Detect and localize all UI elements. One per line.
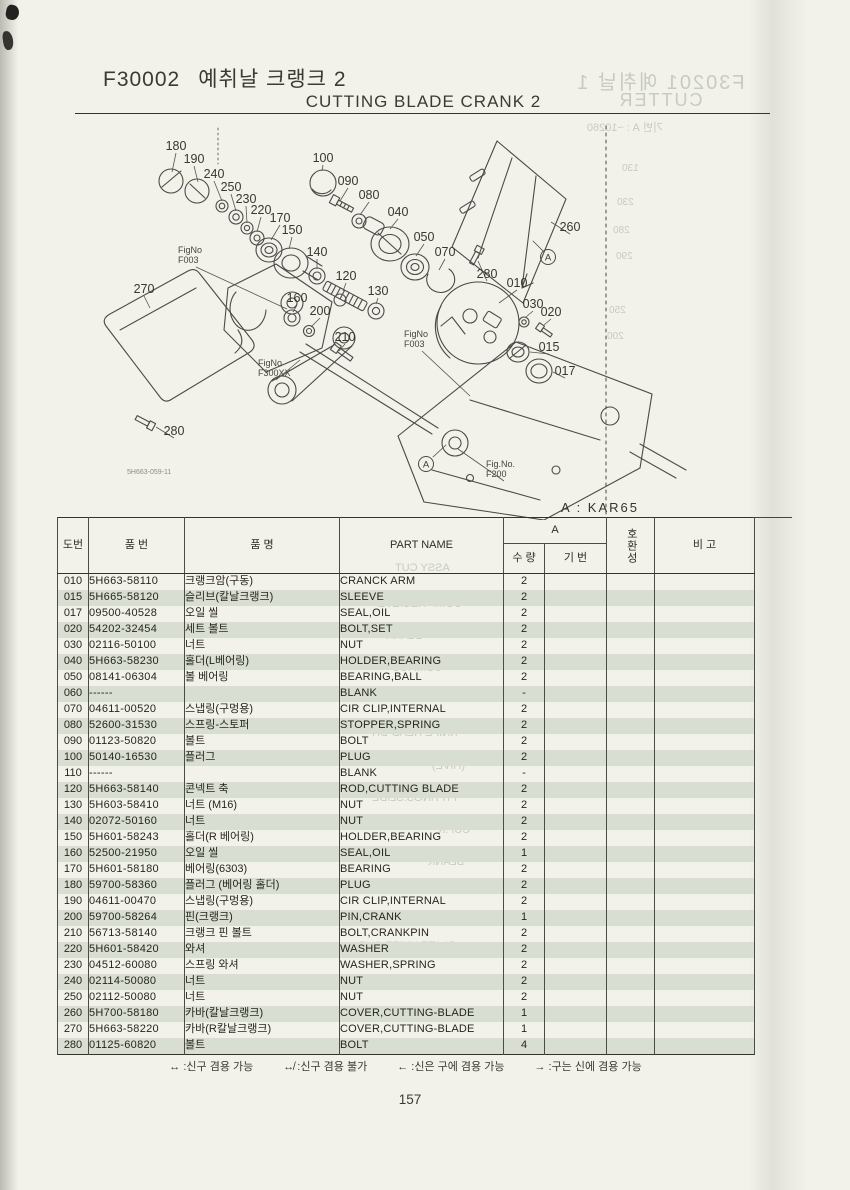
cell-serial xyxy=(545,638,607,654)
table-row: 230 04512-60080 스프링 와셔 WASHER,SPRING 2 xyxy=(58,958,755,974)
cell-index: 150 xyxy=(58,830,89,846)
cell-index: 110 xyxy=(58,766,89,782)
cell-name-korean: 세트 볼트 xyxy=(185,622,340,638)
diagram-callout: 010 xyxy=(507,276,528,290)
cell-interchange xyxy=(607,926,655,942)
table-row: 160 52500-21950 오일 씰 SEAL,OIL 1 xyxy=(58,846,755,862)
cell-serial xyxy=(545,926,607,942)
cell-index: 015 xyxy=(58,590,89,606)
cell-part-number: 5H663-58110 xyxy=(89,574,185,591)
cell-quantity: 2 xyxy=(504,606,545,622)
diagram-callout: 100 xyxy=(313,151,334,165)
col-header-part-name: PART NAME xyxy=(340,518,504,574)
cell-interchange xyxy=(607,942,655,958)
diagram-callout: 210 xyxy=(335,330,356,344)
cell-remarks xyxy=(655,670,755,686)
cell-serial xyxy=(545,1022,607,1038)
cell-part-number: 04611-00520 xyxy=(89,702,185,718)
cell-serial xyxy=(545,910,607,926)
cell-index: 140 xyxy=(58,814,89,830)
cell-name-korean: 볼 베어링 xyxy=(185,670,340,686)
cell-serial xyxy=(545,942,607,958)
cell-remarks xyxy=(655,638,755,654)
cell-part-name: NUT xyxy=(340,638,504,654)
cell-quantity: 2 xyxy=(504,974,545,990)
cell-index: 250 xyxy=(58,990,89,1006)
diagram-callout: 140 xyxy=(307,245,328,259)
parts-table-wrap: 도번 품 번 품 명 PART NAME A 호환성 비 고 수 량 기 번 0… xyxy=(57,517,755,1055)
cell-part-number: 5H663-58220 xyxy=(89,1022,185,1038)
cell-remarks xyxy=(655,814,755,830)
cell-index: 010 xyxy=(58,574,89,591)
diagram-callout: 160 xyxy=(287,291,308,305)
cell-quantity: 2 xyxy=(504,654,545,670)
cell-part-number: 5H601-58243 xyxy=(89,830,185,846)
cell-remarks xyxy=(655,974,755,990)
cell-serial xyxy=(545,574,607,591)
cell-part-name: BEARING xyxy=(340,862,504,878)
cell-index: 020 xyxy=(58,622,89,638)
cell-quantity: 1 xyxy=(504,1022,545,1038)
cell-remarks xyxy=(655,1038,755,1055)
table-row: 220 5H601-58420 와셔 WASHER 2 xyxy=(58,942,755,958)
cell-interchange xyxy=(607,910,655,926)
cell-name-korean: 카바(칼날크랭크) xyxy=(185,1006,340,1022)
cell-part-name: SLEEVE xyxy=(340,590,504,606)
cell-part-name: CIR CLIP,INTERNAL xyxy=(340,702,504,718)
cell-quantity: - xyxy=(504,766,545,782)
cell-name-korean: 스프링-스토퍼 xyxy=(185,718,340,734)
col-header-name-kr: 품 명 xyxy=(185,518,340,574)
cell-remarks xyxy=(655,782,755,798)
cell-interchange xyxy=(607,734,655,750)
cell-part-name: CRANCK ARM xyxy=(340,574,504,591)
cell-part-number: 02072-50160 xyxy=(89,814,185,830)
cell-part-number: ------ xyxy=(89,766,185,782)
cell-interchange xyxy=(607,798,655,814)
cell-quantity: 2 xyxy=(504,814,545,830)
table-row: 050 08141-06304 볼 베어링 BEARING,BALL 2 xyxy=(58,670,755,686)
cell-part-name: BLANK xyxy=(340,766,504,782)
fig-reference-label: FigNoF003 xyxy=(404,329,428,349)
cell-remarks xyxy=(655,798,755,814)
legend-item: → :구는 신에 겸용 가능 xyxy=(534,1058,641,1074)
cell-interchange xyxy=(607,638,655,654)
cell-remarks xyxy=(655,894,755,910)
cell-part-number: 5H603-58410 xyxy=(89,798,185,814)
col-header-interchange: 호환성 xyxy=(607,518,655,574)
callout-leader xyxy=(271,225,280,240)
diagram-callout: 200 xyxy=(310,304,331,318)
callout-leader xyxy=(144,296,150,308)
cell-serial xyxy=(545,750,607,766)
cell-interchange xyxy=(607,1038,655,1055)
a-marker-label: A xyxy=(423,460,430,471)
cell-index: 030 xyxy=(58,638,89,654)
diagram-callout: 015 xyxy=(539,340,560,354)
cell-quantity: 2 xyxy=(504,782,545,798)
cell-part-number: 5H700-58180 xyxy=(89,1006,185,1022)
fig-reference-label: Fig.No.F200 xyxy=(486,459,515,479)
cell-part-number: 09500-40528 xyxy=(89,606,185,622)
cell-name-korean: 스냅링(구멍용) xyxy=(185,702,340,718)
table-row: 200 59700-58264 핀(크랭크) PIN,CRANK 1 xyxy=(58,910,755,926)
cell-quantity: 2 xyxy=(504,734,545,750)
fig-label-leader xyxy=(196,267,287,309)
cell-part-number: 02116-50100 xyxy=(89,638,185,654)
cell-part-name: NUT xyxy=(340,974,504,990)
cell-index: 080 xyxy=(58,718,89,734)
cell-quantity: 2 xyxy=(504,750,545,766)
cell-part-number: 02114-50080 xyxy=(89,974,185,990)
cell-remarks xyxy=(655,990,755,1006)
cell-serial xyxy=(545,830,607,846)
fig-reference-label: FigNoF003 xyxy=(178,245,202,265)
diagram-callout: 120 xyxy=(336,269,357,283)
cell-remarks xyxy=(655,718,755,734)
cell-name-korean: 볼트 xyxy=(185,1038,340,1055)
cell-remarks xyxy=(655,734,755,750)
cell-quantity: 2 xyxy=(504,670,545,686)
cell-interchange xyxy=(607,846,655,862)
cell-part-number: 08141-06304 xyxy=(89,670,185,686)
cell-interchange xyxy=(607,718,655,734)
cell-serial xyxy=(545,846,607,862)
cell-interchange xyxy=(607,990,655,1006)
table-row: 190 04611-00470 스냅링(구멍용) CIR CLIP,INTERN… xyxy=(58,894,755,910)
cell-part-number: 50140-16530 xyxy=(89,750,185,766)
diagram-callout: 080 xyxy=(359,188,380,202)
cell-name-korean: 스냅링(구멍용) xyxy=(185,894,340,910)
cell-remarks xyxy=(655,862,755,878)
diagram-callout: 090 xyxy=(338,174,359,188)
cell-remarks xyxy=(655,686,755,702)
table-row: 180 59700-58360 플러그 (베어링 홀더) PLUG 2 xyxy=(58,878,755,894)
cell-part-name: BOLT xyxy=(340,734,504,750)
diagram-callout: 280 xyxy=(477,267,498,281)
cell-name-korean: 크랭크암(구동) xyxy=(185,574,340,591)
cell-part-number: 04611-00470 xyxy=(89,894,185,910)
diagram-callout: 260 xyxy=(560,220,581,234)
cell-quantity: 2 xyxy=(504,798,545,814)
exploded-diagram: 1801902402502302201701501401000900800400… xyxy=(0,0,850,520)
col-header-serial: 기 번 xyxy=(545,544,607,574)
cell-index: 060 xyxy=(58,686,89,702)
interchange-legend: ↔ :신구 겸용 가능↮ :신구 겸용 불가← :신은 구에 겸용 가능→ :구… xyxy=(57,1058,754,1074)
callout-leader xyxy=(257,217,261,232)
cell-index: 070 xyxy=(58,702,89,718)
cell-remarks xyxy=(655,958,755,974)
table-row: 100 50140-16530 플러그 PLUG 2 xyxy=(58,750,755,766)
cell-quantity: 2 xyxy=(504,942,545,958)
cell-serial xyxy=(545,990,607,1006)
cell-remarks xyxy=(655,574,755,591)
cell-index: 130 xyxy=(58,798,89,814)
table-row: 110 ------ BLANK - xyxy=(58,766,755,782)
cell-quantity: 2 xyxy=(504,590,545,606)
cell-name-korean: 홀더(R 베어링) xyxy=(185,830,340,846)
cell-part-number: 5H665-58120 xyxy=(89,590,185,606)
table-row: 010 5H663-58110 크랭크암(구동) CRANCK ARM 2 xyxy=(58,574,755,591)
table-row: 260 5H700-58180 카바(칼날크랭크) COVER,CUTTING-… xyxy=(58,1006,755,1022)
cell-name-korean: 베어링(6303) xyxy=(185,862,340,878)
cell-name-korean: 플러그 (베어링 홀더) xyxy=(185,878,340,894)
cell-remarks xyxy=(655,590,755,606)
cell-name-korean: 너트 (M16) xyxy=(185,798,340,814)
table-row: 070 04611-00520 스냅링(구멍용) CIR CLIP,INTERN… xyxy=(58,702,755,718)
cell-remarks xyxy=(655,942,755,958)
cell-quantity: 1 xyxy=(504,910,545,926)
table-row: 140 02072-50160 너트 NUT 2 xyxy=(58,814,755,830)
cell-serial xyxy=(545,782,607,798)
cell-remarks xyxy=(655,830,755,846)
cell-quantity: 2 xyxy=(504,638,545,654)
cell-name-korean: 볼트 xyxy=(185,734,340,750)
table-row: 150 5H601-58243 홀더(R 베어링) HOLDER,BEARING… xyxy=(58,830,755,846)
applicability-note: A : KAR65 xyxy=(500,500,700,515)
cell-part-name: BOLT,SET xyxy=(340,622,504,638)
cell-part-number: 5H601-58420 xyxy=(89,942,185,958)
cell-name-korean: 너트 xyxy=(185,638,340,654)
cell-quantity: 4 xyxy=(504,1038,545,1055)
cell-interchange xyxy=(607,1006,655,1022)
cell-name-korean xyxy=(185,766,340,782)
table-row: 020 54202-32454 세트 볼트 BOLT,SET 2 xyxy=(58,622,755,638)
cell-index: 210 xyxy=(58,926,89,942)
col-header-remarks: 비 고 xyxy=(655,518,755,574)
cell-index: 040 xyxy=(58,654,89,670)
cell-serial xyxy=(545,702,607,718)
cell-part-name: WASHER xyxy=(340,942,504,958)
diagram-callout: 180 xyxy=(166,139,187,153)
cell-name-korean: 너트 xyxy=(185,974,340,990)
cell-part-number: 5H663-58140 xyxy=(89,782,185,798)
table-row: 015 5H665-58120 슬리브(칼날크랭크) SLEEVE 2 xyxy=(58,590,755,606)
cell-index: 050 xyxy=(58,670,89,686)
cell-index: 100 xyxy=(58,750,89,766)
cell-remarks xyxy=(655,846,755,862)
cell-quantity: 2 xyxy=(504,622,545,638)
cell-serial xyxy=(545,718,607,734)
cell-name-korean xyxy=(185,686,340,702)
cell-name-korean: 홀더(L베어링) xyxy=(185,654,340,670)
cell-part-name: HOLDER,BEARING xyxy=(340,654,504,670)
diagram-callout: 220 xyxy=(251,203,272,217)
cell-part-number: 52600-31530 xyxy=(89,718,185,734)
col-header-qty: 수 량 xyxy=(504,544,545,574)
cell-part-number: ------ xyxy=(89,686,185,702)
table-row: 130 5H603-58410 너트 (M16) NUT 2 xyxy=(58,798,755,814)
cell-interchange xyxy=(607,878,655,894)
cell-part-name: SEAL,OIL xyxy=(340,606,504,622)
cell-part-name: BLANK xyxy=(340,686,504,702)
col-header-index: 도번 xyxy=(58,518,89,574)
cell-part-name: NUT xyxy=(340,798,504,814)
cell-part-name: STOPPER,SPRING xyxy=(340,718,504,734)
fig-reference-label: FigNoF300XX xyxy=(258,358,291,378)
cell-remarks xyxy=(655,654,755,670)
cell-quantity: 2 xyxy=(504,958,545,974)
cell-interchange xyxy=(607,670,655,686)
cell-interchange xyxy=(607,830,655,846)
cell-interchange xyxy=(607,590,655,606)
diagram-callout: 070 xyxy=(435,245,456,259)
cell-serial xyxy=(545,766,607,782)
cell-name-korean: 너트 xyxy=(185,990,340,1006)
cell-interchange xyxy=(607,974,655,990)
cell-serial xyxy=(545,686,607,702)
cell-remarks xyxy=(655,910,755,926)
cell-part-name: SEAL,OIL xyxy=(340,846,504,862)
diagram-callout: 270 xyxy=(134,282,155,296)
callout-leader xyxy=(360,202,369,215)
diagram-callout: 280 xyxy=(164,424,185,438)
cell-remarks xyxy=(655,1006,755,1022)
cell-quantity: 2 xyxy=(504,702,545,718)
cell-part-name: NUT xyxy=(340,990,504,1006)
cell-serial xyxy=(545,734,607,750)
cell-interchange xyxy=(607,894,655,910)
cell-interchange xyxy=(607,750,655,766)
cell-name-korean: 크랭크 핀 볼트 xyxy=(185,926,340,942)
cell-quantity: 2 xyxy=(504,830,545,846)
table-row: 080 52600-31530 스프링-스토퍼 STOPPER,SPRING 2 xyxy=(58,718,755,734)
cell-name-korean: 와셔 xyxy=(185,942,340,958)
diagram-callout: 040 xyxy=(388,205,409,219)
cell-serial xyxy=(545,894,607,910)
cell-interchange xyxy=(607,654,655,670)
cell-serial xyxy=(545,670,607,686)
cell-interchange xyxy=(607,686,655,702)
cell-part-number: 04512-60080 xyxy=(89,958,185,974)
cell-quantity: 2 xyxy=(504,862,545,878)
cell-part-number: 01125-60820 xyxy=(89,1038,185,1055)
diagram-callout: 050 xyxy=(414,230,435,244)
cell-serial xyxy=(545,798,607,814)
cell-interchange xyxy=(607,622,655,638)
table-row: 030 02116-50100 너트 NUT 2 xyxy=(58,638,755,654)
cell-index: 280 xyxy=(58,1038,89,1055)
cell-serial xyxy=(545,622,607,638)
cell-part-name: PLUG xyxy=(340,750,504,766)
cell-part-number: 59700-58360 xyxy=(89,878,185,894)
table-rule-extension xyxy=(753,517,792,518)
table-row: 240 02114-50080 너트 NUT 2 xyxy=(58,974,755,990)
cell-interchange xyxy=(607,814,655,830)
cell-part-name: CIR CLIP,INTERNAL xyxy=(340,894,504,910)
cell-index: 120 xyxy=(58,782,89,798)
callout-leader xyxy=(289,237,292,249)
fig-label-leader xyxy=(422,351,470,396)
cell-remarks xyxy=(655,766,755,782)
cell-interchange xyxy=(607,766,655,782)
table-row: 270 5H663-58220 카바(R칼날크랭크) COVER,CUTTING… xyxy=(58,1022,755,1038)
cell-part-name: COVER,CUTTING-BLADE xyxy=(340,1006,504,1022)
cell-interchange xyxy=(607,958,655,974)
diagram-callout: 017 xyxy=(555,364,576,378)
cell-index: 230 xyxy=(58,958,89,974)
callout-leader xyxy=(439,259,445,270)
cell-remarks xyxy=(655,750,755,766)
diagram-callout: 150 xyxy=(282,223,303,237)
cell-serial xyxy=(545,1006,607,1022)
cell-index: 017 xyxy=(58,606,89,622)
cell-part-number: 59700-58264 xyxy=(89,910,185,926)
table-row: 210 56713-58140 크랭크 핀 볼트 BOLT,CRANKPIN 2 xyxy=(58,926,755,942)
callout-leader xyxy=(246,206,247,223)
col-header-group-a: A xyxy=(504,518,607,544)
cell-name-korean: 콘넥트 축 xyxy=(185,782,340,798)
cell-quantity: 2 xyxy=(504,878,545,894)
cell-index: 260 xyxy=(58,1006,89,1022)
cell-serial xyxy=(545,1038,607,1055)
callout-leader xyxy=(526,311,533,317)
cell-part-name: PIN,CRANK xyxy=(340,910,504,926)
cell-index: 200 xyxy=(58,910,89,926)
cell-quantity: - xyxy=(504,686,545,702)
cell-serial xyxy=(545,862,607,878)
cell-part-name: BOLT,CRANKPIN xyxy=(340,926,504,942)
legend-item: ← :신은 구에 겸용 가능 xyxy=(397,1058,504,1074)
diagram-drawing-number: 5H663-059-11 xyxy=(127,469,171,476)
cell-part-number: 54202-32454 xyxy=(89,622,185,638)
cell-part-number: 52500-21950 xyxy=(89,846,185,862)
table-row: 090 01123-50820 볼트 BOLT 2 xyxy=(58,734,755,750)
cell-name-korean: 핀(크랭크) xyxy=(185,910,340,926)
cell-quantity: 2 xyxy=(504,718,545,734)
cell-part-number: 5H601-58180 xyxy=(89,862,185,878)
cell-remarks xyxy=(655,606,755,622)
cell-part-name: NUT xyxy=(340,814,504,830)
cell-name-korean: 카바(R칼날크랭크) xyxy=(185,1022,340,1038)
cell-interchange xyxy=(607,862,655,878)
cell-part-number: 01123-50820 xyxy=(89,734,185,750)
legend-item: ↔ :신구 겸용 가능 xyxy=(169,1058,253,1074)
cell-index: 170 xyxy=(58,862,89,878)
table-row: 017 09500-40528 오일 씰 SEAL,OIL 2 xyxy=(58,606,755,622)
cell-quantity: 2 xyxy=(504,574,545,591)
diagram-callout: 020 xyxy=(541,305,562,319)
cell-index: 270 xyxy=(58,1022,89,1038)
cell-part-name: PLUG xyxy=(340,878,504,894)
table-row: 120 5H663-58140 콘넥트 축 ROD,CUTTING BLADE … xyxy=(58,782,755,798)
legend-item: ↮ :신구 겸용 불가 xyxy=(283,1058,367,1074)
cell-remarks xyxy=(655,622,755,638)
cell-interchange xyxy=(607,606,655,622)
cell-index: 190 xyxy=(58,894,89,910)
cell-name-korean: 슬리브(칼날크랭크) xyxy=(185,590,340,606)
cell-index: 180 xyxy=(58,878,89,894)
catalog-page: F30201 예취날 1 CUTTER 기번 A : ~10260 ASSY C… xyxy=(0,0,850,1190)
cell-part-name: WASHER,SPRING xyxy=(340,958,504,974)
cell-serial xyxy=(545,878,607,894)
cell-interchange xyxy=(607,574,655,591)
callout-leader xyxy=(416,244,424,256)
parts-table: 도번 품 번 품 명 PART NAME A 호환성 비 고 수 량 기 번 0… xyxy=(57,517,755,1055)
cell-part-name: BOLT xyxy=(340,1038,504,1055)
cell-index: 220 xyxy=(58,942,89,958)
cell-quantity: 2 xyxy=(504,894,545,910)
callout-leader xyxy=(340,188,348,201)
cell-interchange xyxy=(607,1022,655,1038)
cell-name-korean: 스프링 와셔 xyxy=(185,958,340,974)
cell-name-korean: 너트 xyxy=(185,814,340,830)
cell-remarks xyxy=(655,926,755,942)
cell-part-name: BEARING,BALL xyxy=(340,670,504,686)
cell-index: 090 xyxy=(58,734,89,750)
cell-part-name: COVER,CUTTING-BLADE xyxy=(340,1022,504,1038)
table-row: 280 01125-60820 볼트 BOLT 4 xyxy=(58,1038,755,1055)
